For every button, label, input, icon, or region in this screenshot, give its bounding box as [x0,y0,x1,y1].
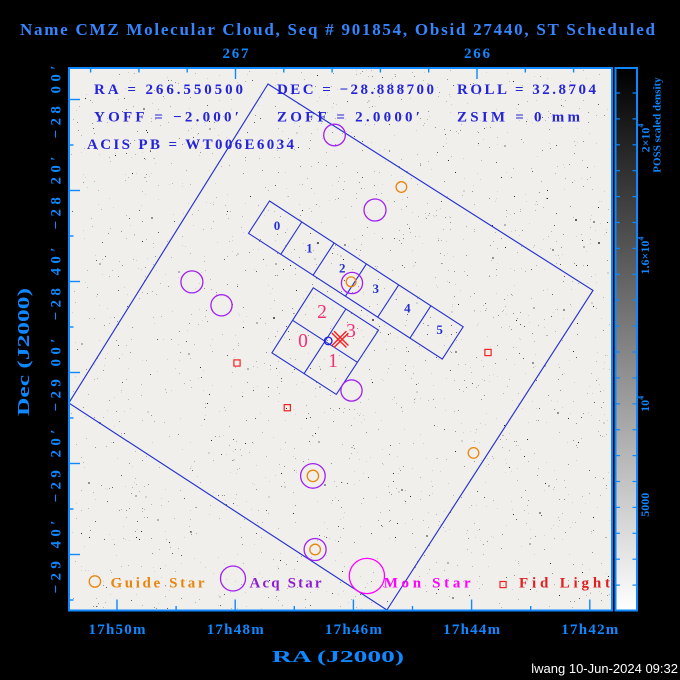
svg-text:RA (J2000): RA (J2000) [272,647,404,666]
svg-text:17h44m: 17h44m [443,622,500,638]
svg-text:4: 4 [404,300,411,315]
svg-text:17h50m: 17h50m [89,622,147,638]
svg-text:3: 3 [372,281,379,296]
svg-text:Name CMZ Molecular Cloud, Seq: Name CMZ Molecular Cloud, Seq # 901854, … [20,20,656,39]
svg-text:1.6×104: 1.6×104 [637,237,652,275]
svg-text:2: 2 [317,302,327,323]
svg-text:ZSIM = 0 mm: ZSIM = 0 mm [457,110,581,126]
svg-text:Guide Star: Guide Star [111,576,205,592]
svg-text:Fid Light: Fid Light [519,576,610,592]
svg-text:RA = 266.550500: RA = 266.550500 [94,82,243,98]
svg-text:Dec (J2000): Dec (J2000) [14,288,33,416]
svg-text:YOFF = −2.000′: YOFF = −2.000′ [94,110,239,126]
svg-text:267: 267 [223,46,250,62]
svg-text:0: 0 [298,331,308,352]
svg-text:266: 266 [464,46,491,62]
svg-text:2×104: 2×104 [637,124,652,153]
svg-text:5000: 5000 [638,493,652,517]
svg-text:ACIS PB = WT006E6034: ACIS PB = WT006E6034 [87,137,295,153]
svg-text:5: 5 [436,322,443,337]
svg-text:1: 1 [306,241,313,256]
svg-text:Mon Star: Mon Star [384,576,471,592]
svg-text:3: 3 [346,321,356,342]
svg-text:17h42m: 17h42m [561,622,619,638]
svg-text:2: 2 [339,260,346,275]
svg-text:ROLL = 32.8704: ROLL = 32.8704 [457,82,597,98]
svg-text:lwang 10-Jun-2024 09:32: lwang 10-Jun-2024 09:32 [531,661,678,676]
svg-text:17h48m: 17h48m [207,622,265,638]
svg-text:POSS scaled density: POSS scaled density [652,77,664,173]
svg-text:0: 0 [274,218,281,233]
svg-text:ZOFF = 2.0000′: ZOFF = 2.0000′ [277,110,420,126]
svg-text:17h46m: 17h46m [325,622,383,638]
svg-text:1: 1 [328,351,338,372]
